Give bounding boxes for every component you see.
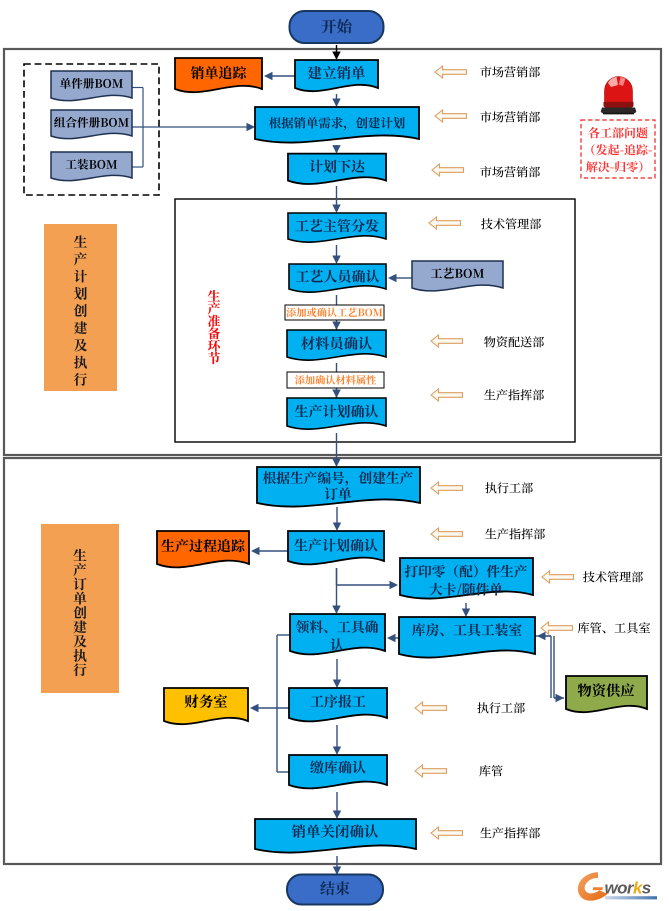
- svg-text:works: works: [605, 879, 651, 898]
